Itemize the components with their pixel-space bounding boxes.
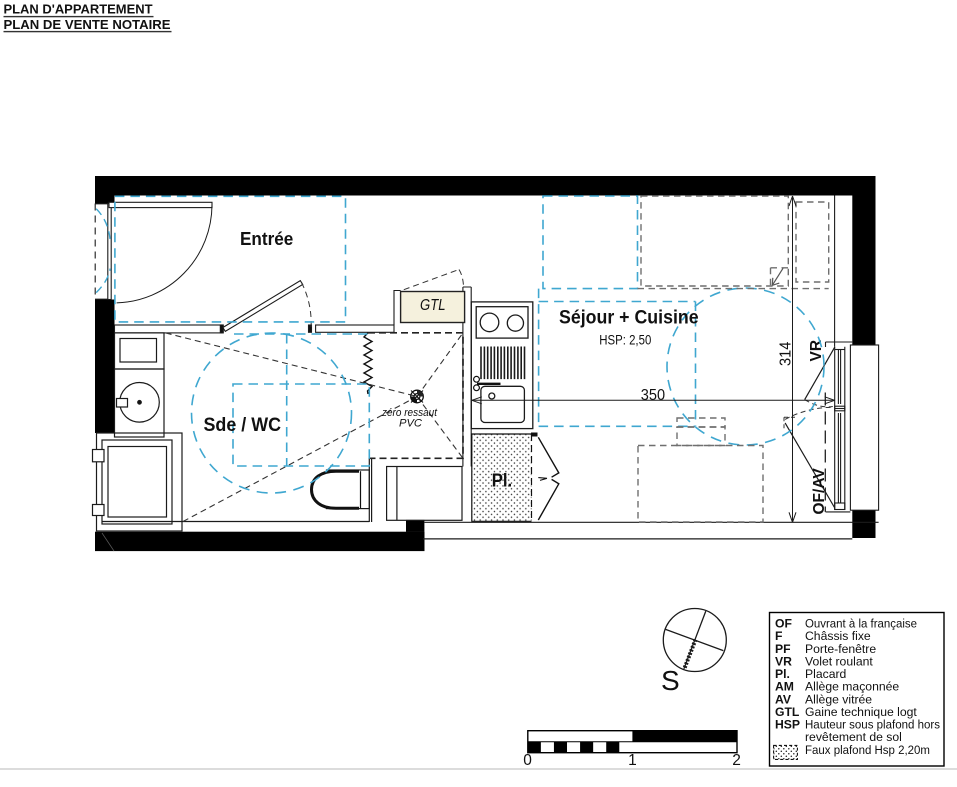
svg-text:314: 314 bbox=[777, 342, 794, 366]
svg-text:PLAN D'APPARTEMENT: PLAN D'APPARTEMENT bbox=[4, 2, 153, 17]
svg-text:Faux plafond Hsp 2,20m: Faux plafond Hsp 2,20m bbox=[805, 743, 930, 757]
svg-text:HSP: 2,50: HSP: 2,50 bbox=[599, 332, 651, 347]
svg-text:HSP: HSP bbox=[775, 718, 800, 732]
svg-text:0: 0 bbox=[523, 752, 532, 769]
svg-text:revêtement de sol: revêtement de sol bbox=[805, 730, 902, 744]
svg-text:GTL: GTL bbox=[420, 297, 446, 314]
svg-text:Pl.: Pl. bbox=[492, 471, 513, 491]
svg-text:PLAN DE VENTE NOTAIRE: PLAN DE VENTE NOTAIRE bbox=[4, 17, 171, 32]
svg-text:PVC: PVC bbox=[399, 417, 422, 429]
svg-text:1: 1 bbox=[628, 752, 637, 769]
svg-text:350: 350 bbox=[641, 387, 665, 404]
svg-text:2: 2 bbox=[732, 752, 741, 769]
svg-text:S: S bbox=[661, 665, 680, 696]
svg-text:Sde / WC: Sde / WC bbox=[204, 415, 282, 436]
svg-text:Séjour + Cuisine: Séjour + Cuisine bbox=[559, 306, 699, 328]
svg-text:OF/AV: OF/AV bbox=[811, 468, 828, 515]
svg-text:VR: VR bbox=[808, 340, 825, 362]
svg-text:Entrée: Entrée bbox=[240, 228, 293, 249]
